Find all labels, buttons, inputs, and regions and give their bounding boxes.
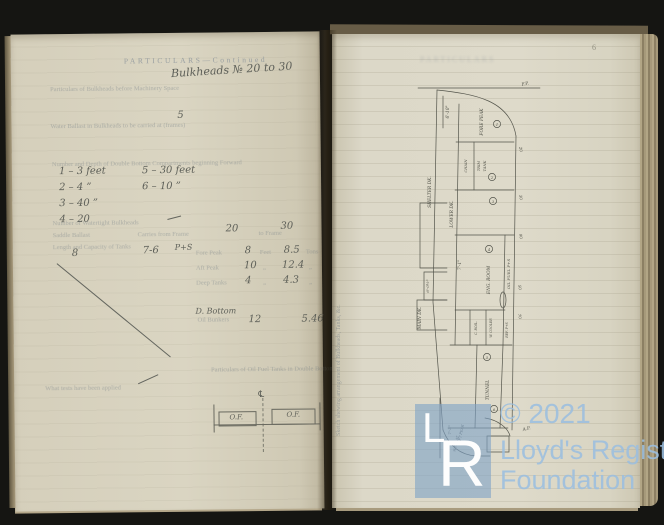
frame-number: 20 (518, 145, 524, 152)
page-number: 6 (592, 43, 596, 52)
eng-dim: 7'-1" (458, 260, 463, 270)
pen-scratch-mark (138, 374, 158, 384)
tank-row-label: Oil Bunkers (197, 316, 229, 323)
left-page: PARTICULARS—Continued Particulars of Bul… (11, 31, 325, 511)
tank-dimension: 7-6 (143, 245, 159, 256)
tank-row-tons: 12.4 (282, 260, 304, 271)
main-dim: 6'-0½" (425, 279, 430, 292)
feet-unit: Feet (260, 249, 271, 256)
printed-tests-label: What tests have been applied (45, 384, 121, 392)
frame-number: 70 (517, 313, 523, 319)
oil-fuel-tank-label: O.F. (229, 413, 243, 421)
oil-fuel-lens (500, 292, 506, 308)
boiler-label: C. Boil. (474, 321, 478, 335)
tunnel-label: Tunnel (486, 380, 491, 401)
printed-ballast-label: Water Ballast in Bulkheads to be carried… (50, 122, 210, 131)
tank-circle-number: 3 (492, 200, 495, 204)
watermark-org-line2: Foundation (500, 465, 635, 496)
frame-number: 90 (518, 233, 524, 239)
handwritten-count: 5 (177, 110, 183, 121)
tank-row-label: Aft Peak (196, 264, 219, 271)
handwritten-from-frame: 20 (225, 223, 238, 234)
chain-label: Chain (464, 159, 468, 173)
frame-number: 30 (518, 194, 524, 200)
oil-fuel-label: Oil Fuel P+S (506, 258, 511, 289)
handwritten-to-frame: 30 (280, 221, 293, 232)
ref-label: Ref. P+S (505, 321, 509, 338)
printed-to-frame-label: to Frame (259, 230, 282, 237)
tank-row-tons: 8.5 (284, 245, 300, 256)
pen-scratch-line (57, 263, 171, 357)
trim-tank-label: Tank (483, 160, 487, 171)
printed-tanks-label: Length and Capacity of Tanks (53, 243, 131, 251)
tank-row-feet: 8 (245, 245, 251, 256)
book-gutter-shadow (317, 30, 337, 510)
printed-bulkheads-label: Particulars of Bulkheads before Machiner… (50, 85, 200, 94)
ditto-mark: „ (263, 264, 266, 271)
tank-row-label: Fore Peak (196, 249, 222, 256)
page-ruling (11, 31, 325, 511)
tank-side: P+S (175, 243, 193, 252)
ditto-mark: „ (263, 279, 266, 286)
printed-carries-label: Carries from Frame (138, 231, 189, 239)
printed-watertight-label: Number of Watertight Bulkheads (52, 219, 138, 227)
watermark-copyright: © 2021 (500, 398, 591, 430)
tank-circle-number: 5 (486, 356, 489, 360)
tank-circle-number: 6 (493, 408, 496, 412)
fp-label: F.P. (520, 81, 530, 88)
oil-fuel-tank-label: O.F. (286, 411, 300, 419)
compartment-list-item: 1 – 3 feet (59, 166, 106, 177)
tank-row-label: Deep Tanks (196, 279, 227, 286)
printed-oil-fuel-label: Particulars of Oil Fuel Tanks in Double … (211, 365, 335, 373)
ditto-mark: „ (309, 278, 312, 285)
lloyds-register-logo: L R (415, 404, 491, 498)
watermark-org-line1: Lloyd's Register (500, 435, 664, 466)
trim-tank-label: Trim (477, 161, 481, 172)
tank-row-feet: 4 (245, 275, 251, 286)
tank-circle-number: 1 (496, 123, 498, 127)
printed-saddle-label: Saddle Ballast (53, 232, 90, 239)
shelter-deck-label: Shelter Dk. (428, 176, 433, 208)
tank-number: 8 (72, 248, 78, 259)
fore-peak-label: Fore Peak (480, 108, 485, 137)
lower-deck-label: Lower Dk. (450, 200, 455, 228)
tank-row-feet: 12 (248, 314, 261, 325)
frame-number: 50 (517, 284, 523, 290)
bow-dim: 6'-10" (446, 105, 451, 118)
tank-row-tons: 4.3 (283, 275, 299, 286)
ghost-heading: PARTICULARS (420, 55, 495, 64)
compartment-list-item: 3 – 40 ” (59, 198, 98, 209)
ditto-mark: „ (309, 263, 312, 270)
compartment-list-item: 5 – 30 feet (142, 165, 195, 177)
cooler-label: W. Cooler (489, 318, 493, 338)
main-deck-label: Main Dk. (418, 307, 423, 331)
logo-letter-r: R (438, 430, 486, 496)
keel-line (512, 136, 516, 430)
compartment-list-item: 2 – 4 ” (59, 182, 91, 193)
pen-scratch-mark (167, 215, 181, 219)
handwritten-db-label: D. Bottom (195, 306, 236, 315)
tank-row-feet: 10 (244, 260, 257, 271)
oil-fuel-tank-box: O.F. (271, 408, 315, 424)
lower-deck-line (455, 104, 459, 345)
tank-circle-number: 2 (490, 176, 494, 180)
scanned-book-photo: PARTICULARS—Continued Particulars of Bul… (0, 0, 664, 525)
sketch-end-tick (213, 405, 214, 433)
tank-circle-number: 4 (487, 248, 491, 252)
oil-fuel-tank-box: O.F. (218, 411, 256, 426)
port-side-line (433, 90, 443, 430)
compartment-list-item: 6 – 10 ” (142, 181, 181, 192)
eng-room-label: Eng. Room (487, 265, 492, 295)
